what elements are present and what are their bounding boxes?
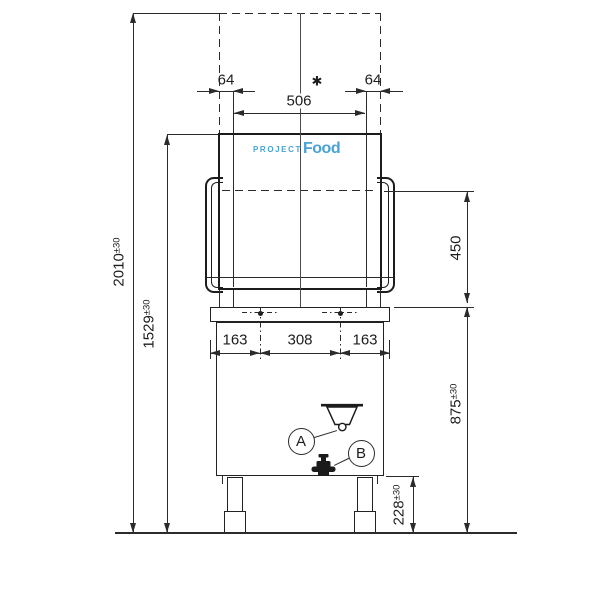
hood-guide-post	[380, 290, 381, 307]
callout-a: A	[288, 428, 315, 455]
arrow-left-icon	[210, 350, 220, 356]
leg-right-foot	[354, 511, 376, 533]
hood-handle-left-inner	[211, 182, 223, 288]
arrow-up-icon	[130, 13, 136, 23]
leg-right	[357, 477, 373, 512]
dim-label-drain-height: 228±30	[392, 485, 407, 526]
arrow-right-icon	[380, 350, 390, 356]
centerline	[300, 13, 301, 307]
dim-line-overhang-right	[345, 91, 403, 92]
dim-label-opening-width: 506	[284, 94, 313, 109]
plinth-edge-left	[222, 476, 223, 484]
brand-logo-food: Food	[303, 140, 340, 158]
arrow-right-icon	[330, 350, 340, 356]
arrow-down-icon	[410, 523, 416, 533]
extension-line-top	[133, 13, 219, 14]
plinth-edge-right	[377, 476, 378, 484]
dim-line-worktop-height	[467, 307, 468, 533]
hood-guide-post	[233, 290, 234, 307]
leg-left	[227, 477, 243, 512]
brand-logo: PROJECT Food	[253, 140, 340, 158]
asterisk-marker: ✱	[310, 75, 325, 88]
dim-label-total-height: 2010±30	[112, 237, 127, 286]
arrow-right-icon	[355, 110, 365, 116]
dim-label-worktop-height: 875±30	[449, 384, 464, 425]
arrow-down-icon	[464, 523, 470, 533]
dim-label-hood-open-height: 1529±30	[142, 299, 157, 348]
callout-b: B	[348, 440, 375, 467]
arrow-left-icon	[260, 350, 270, 356]
arrow-left-icon	[233, 88, 243, 94]
arrow-down-icon	[164, 523, 170, 533]
arrow-right-icon	[209, 88, 219, 94]
arrow-left-icon	[340, 350, 350, 356]
hood-guide-post	[219, 290, 220, 307]
dim-line-overhang-left	[197, 91, 255, 92]
dim-line-clearance	[467, 192, 468, 303]
ground-line	[115, 532, 517, 534]
extension-line-worktop	[394, 307, 474, 308]
hood-guide-post	[366, 290, 367, 307]
arrow-left-icon	[380, 88, 390, 94]
arrow-right-icon	[356, 88, 366, 94]
dim-line-opening-width	[234, 113, 365, 114]
arrow-down-icon	[464, 293, 470, 303]
drain-valve-icon	[311, 454, 336, 477]
extension-line-clearance-top	[384, 191, 474, 192]
hood-inner-line-right	[366, 135, 367, 287]
arrow-up-icon	[464, 307, 470, 317]
extension-line-hood-top	[167, 134, 218, 135]
hood-inner-line-left	[233, 135, 234, 287]
dim-line-total-height	[133, 13, 134, 533]
dim-line-hood-open-height	[167, 135, 168, 533]
extension-line-opening-right	[366, 91, 367, 133]
dim-label-clearance: 450	[449, 235, 464, 260]
arrow-up-icon	[410, 477, 416, 487]
technical-drawing-dishwasher-front-view: PROJECT Food 2010±30 1529±30 64 64 ✱	[0, 0, 600, 600]
drain-funnel-icon	[320, 403, 366, 433]
brand-logo-project: PROJECT	[253, 145, 302, 154]
leg-left-foot	[224, 511, 246, 533]
arrow-down-icon	[130, 523, 136, 533]
dim-label-side-left: 163	[220, 333, 249, 348]
arrow-right-icon	[250, 350, 260, 356]
dim-label-side-right: 163	[350, 333, 379, 348]
dim-label-overhang-left: 64	[216, 73, 237, 88]
dim-label-overhang-right: 64	[363, 73, 384, 88]
dim-label-center-width: 308	[285, 333, 314, 348]
dim-line-worktop-widths	[210, 353, 390, 354]
arrow-left-icon	[234, 110, 244, 116]
worktop-band	[210, 307, 390, 322]
arrow-up-icon	[464, 192, 470, 202]
arrow-up-icon	[164, 135, 170, 145]
hood-handle-right-inner	[377, 182, 389, 288]
